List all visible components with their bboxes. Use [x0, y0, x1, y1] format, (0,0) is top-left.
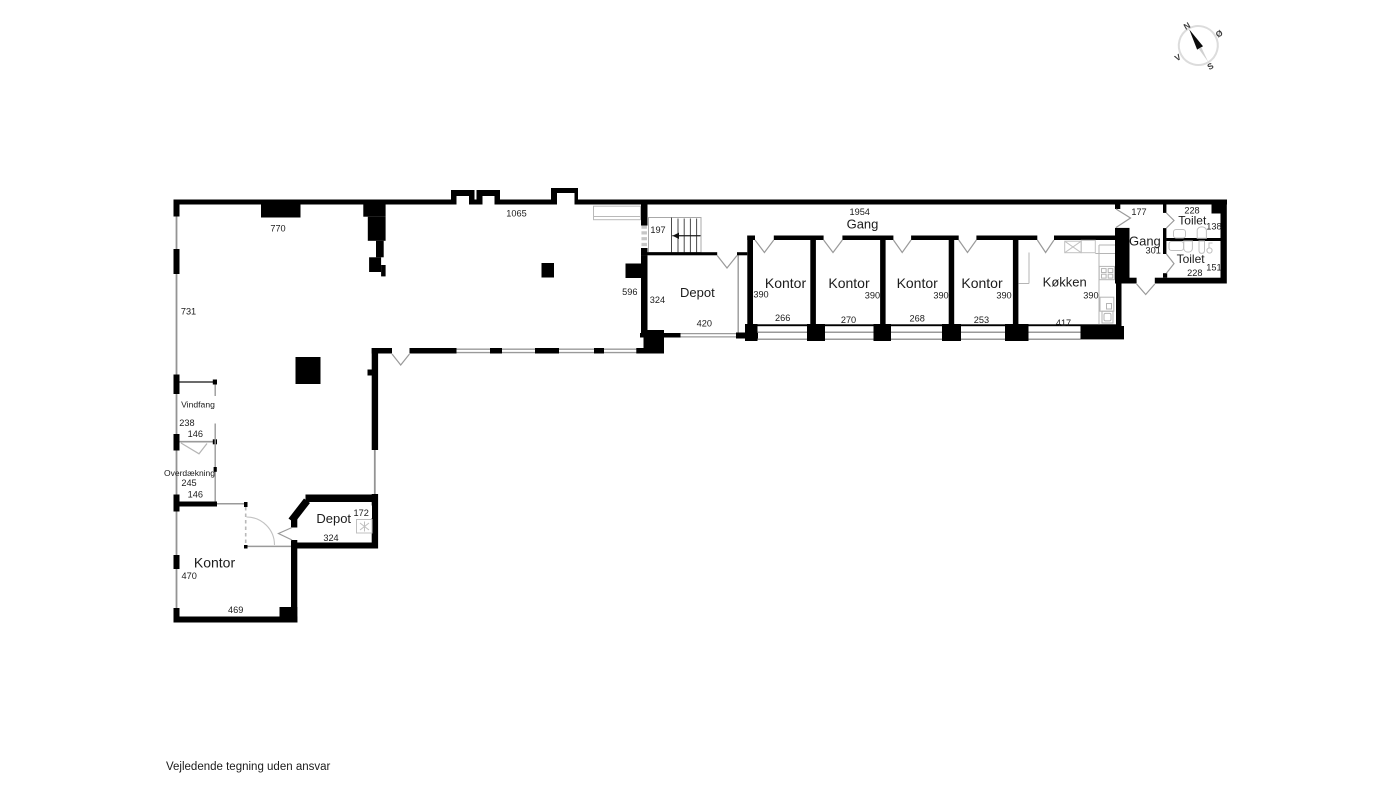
svg-text:417: 417	[1056, 318, 1071, 328]
svg-text:266: 266	[775, 313, 790, 323]
svg-text:172: 172	[354, 508, 369, 518]
svg-text:Depot: Depot	[316, 511, 351, 526]
svg-text:Toilet: Toilet	[1177, 252, 1206, 266]
svg-text:238: 238	[179, 418, 194, 428]
svg-text:470: 470	[182, 571, 197, 581]
svg-text:390: 390	[996, 291, 1011, 301]
svg-text:Kontor: Kontor	[961, 275, 1003, 291]
svg-text:469: 469	[228, 605, 243, 615]
svg-text:1065: 1065	[506, 209, 526, 219]
svg-text:245: 245	[181, 478, 196, 488]
svg-text:146: 146	[188, 490, 203, 500]
svg-text:Kontor: Kontor	[897, 275, 939, 291]
svg-text:596: 596	[622, 287, 637, 297]
svg-text:Overdækning: Overdækning	[164, 468, 215, 478]
svg-text:Vejledende tegning uden ansvar: Vejledende tegning uden ansvar	[166, 761, 331, 773]
svg-text:Vindfang: Vindfang	[181, 399, 215, 409]
svg-text:228: 228	[1187, 268, 1202, 278]
svg-text:177: 177	[1131, 207, 1146, 217]
svg-text:324: 324	[650, 295, 665, 305]
svg-text:146: 146	[188, 429, 203, 439]
svg-text:390: 390	[865, 291, 880, 301]
svg-text:770: 770	[270, 224, 285, 234]
svg-text:138: 138	[1206, 222, 1221, 232]
svg-text:731: 731	[181, 307, 196, 317]
svg-text:324: 324	[323, 533, 338, 543]
svg-text:Kontor: Kontor	[765, 275, 807, 291]
svg-text:390: 390	[933, 291, 948, 301]
svg-text:Toilet: Toilet	[1178, 214, 1207, 228]
svg-text:253: 253	[974, 315, 989, 325]
svg-text:390: 390	[1083, 291, 1098, 301]
svg-text:Køkken: Køkken	[1043, 275, 1087, 290]
svg-text:420: 420	[697, 319, 712, 329]
svg-text:390: 390	[753, 290, 768, 300]
svg-text:Gang: Gang	[847, 216, 879, 231]
svg-text:270: 270	[841, 315, 856, 325]
svg-text:197: 197	[650, 225, 665, 235]
svg-text:Kontor: Kontor	[194, 555, 236, 571]
svg-text:Kontor: Kontor	[828, 275, 870, 291]
svg-text:151: 151	[1206, 263, 1221, 273]
svg-text:Depot: Depot	[680, 285, 715, 300]
svg-text:268: 268	[910, 314, 925, 324]
svg-text:301: 301	[1146, 246, 1161, 256]
